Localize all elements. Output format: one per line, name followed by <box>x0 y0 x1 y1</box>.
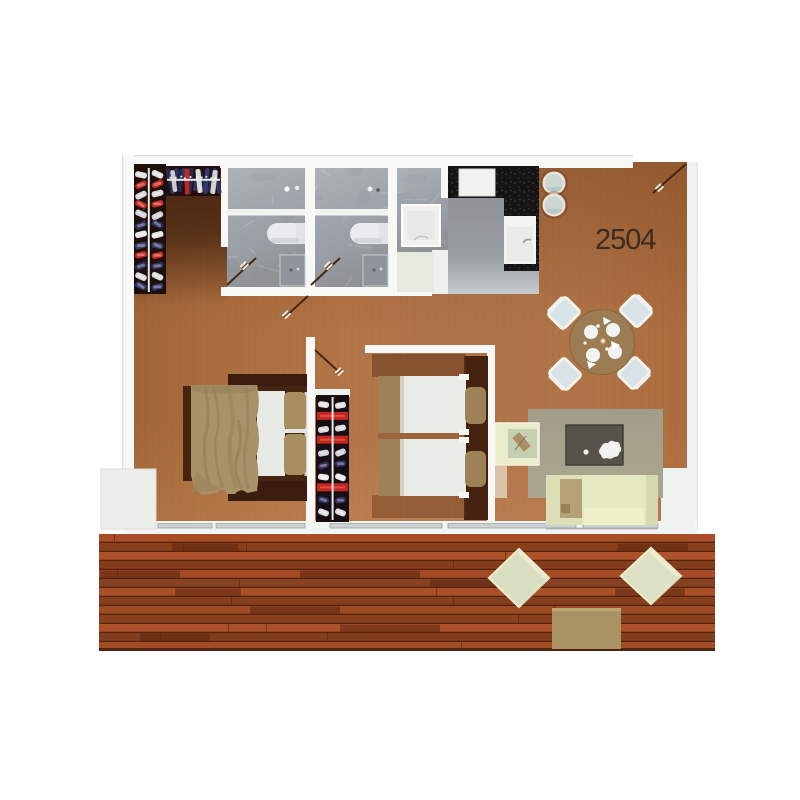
svg-text:2504: 2504 <box>595 224 656 256</box>
